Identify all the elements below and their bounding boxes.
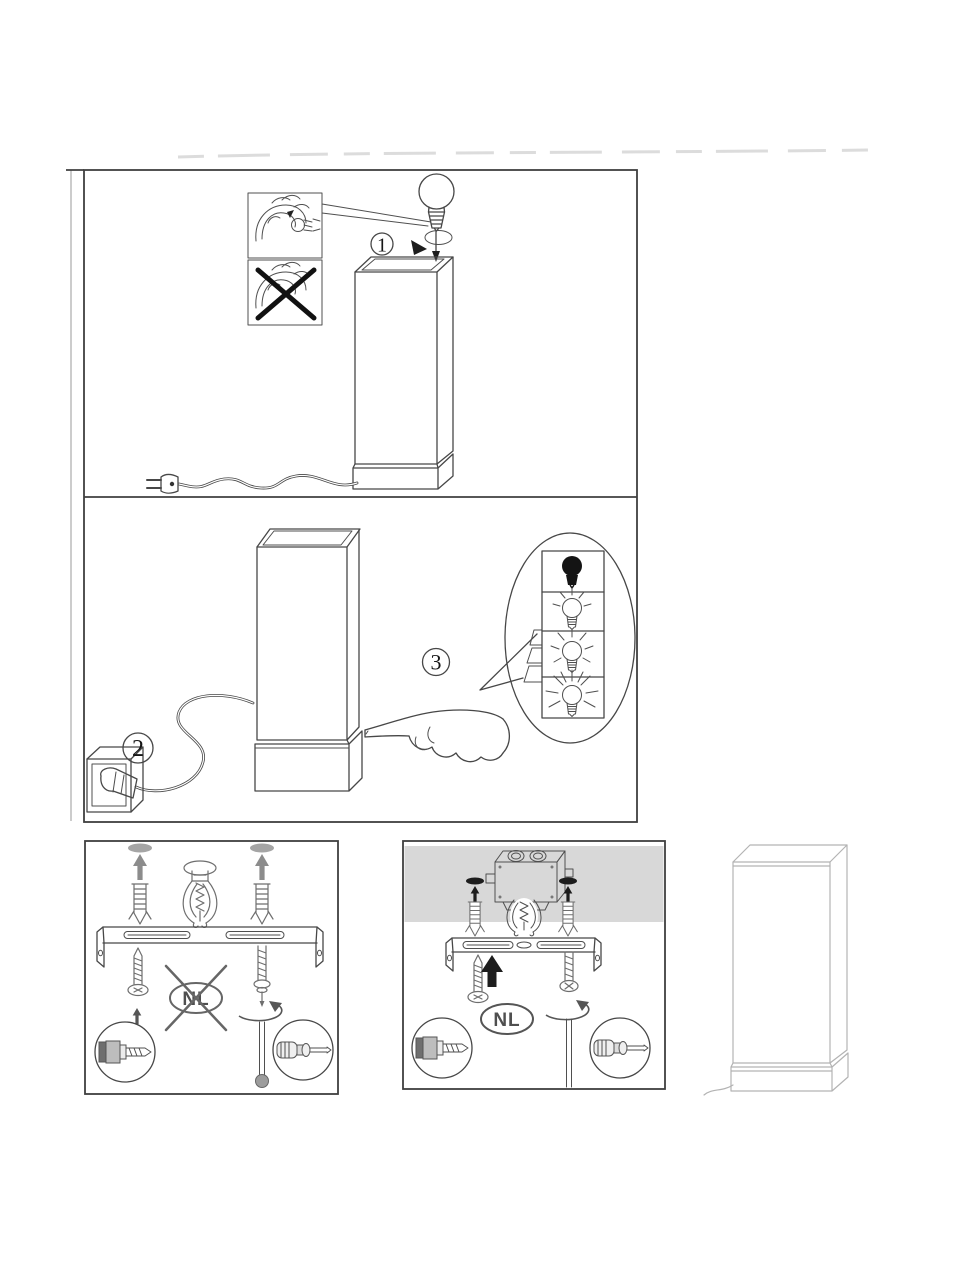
- hand-holding-bulb-icon: [256, 195, 309, 241]
- brightness-speech-bubble: [480, 533, 635, 743]
- screw-with-rotation-icon: [254, 946, 270, 1007]
- drill-hole-icon: [466, 878, 484, 885]
- inset-correct-bulb-handling: [248, 193, 322, 258]
- power-plug-icon: [147, 474, 178, 493]
- rotation-arrow-icon: [546, 1000, 589, 1020]
- wall-anchor-icon: [129, 884, 151, 924]
- up-arrow-icon: [133, 1008, 142, 1024]
- table-lamp-illustration: [353, 257, 453, 489]
- assembled-lamp-drawing: [704, 845, 848, 1095]
- ceiling-mount-panel: NL: [403, 841, 665, 1089]
- light-bulb-icon: [419, 174, 454, 231]
- up-arrow-icon: [481, 955, 503, 987]
- magnifier-wall-plug-detail: [95, 1022, 155, 1082]
- x-mark-icon: [258, 270, 314, 318]
- pointing-hand-icon: [365, 710, 509, 762]
- magnifier-screwdriver-detail: [273, 1020, 333, 1080]
- inset-pointer-lines: [322, 204, 431, 226]
- rotation-arrow-icon: [239, 1001, 282, 1021]
- magnifier-screwdriver-detail: [590, 1018, 650, 1078]
- nl-label: NL: [493, 1010, 520, 1031]
- instruction-sheet-page: 1: [0, 0, 958, 1280]
- step-1-badge: 1: [371, 233, 393, 257]
- wall-anchor-icon: [251, 884, 273, 924]
- nl-badge-crossed: NL: [166, 966, 226, 1030]
- step-3-badge: 3: [423, 649, 450, 676]
- rotation-cue-ellipse: [425, 231, 452, 245]
- screw-icon: [468, 955, 488, 1003]
- main-instruction-box: 1: [84, 170, 637, 822]
- screw-icon: [128, 948, 148, 996]
- main-box-border: [84, 170, 637, 822]
- panel-step-1-insert-bulb: 1: [147, 174, 454, 493]
- up-arrow-icon: [133, 854, 147, 880]
- mounting-bracket-icon: [97, 927, 323, 967]
- brightness-level-low-icon: [553, 588, 591, 630]
- magnifier-wall-plug-detail: [412, 1018, 472, 1078]
- power-cord: [704, 1085, 733, 1095]
- inset-box: [248, 193, 322, 258]
- step-3-label: 3: [431, 650, 442, 675]
- power-cord: [179, 475, 357, 488]
- corner-arrowhead-icon: [411, 240, 427, 255]
- step-2-badge: 2: [123, 733, 153, 763]
- bulb-in-socket-icon: [292, 219, 305, 232]
- brightness-level-medium-icon: [551, 629, 593, 673]
- tiny-arrow-icon: [287, 210, 294, 218]
- step-2-label: 2: [132, 736, 144, 762]
- instruction-sheet-canvas: 1: [0, 0, 958, 1280]
- claw-fixture-icon: [183, 861, 217, 927]
- inset-wrong-bulb-handling: [248, 260, 322, 325]
- drill-hole-icon: [250, 844, 274, 853]
- nl-badge: NL: [481, 1004, 533, 1034]
- x-mark-icon: [166, 966, 226, 1030]
- drill-hole-icon: [128, 844, 152, 853]
- drill-hole-icon: [559, 878, 577, 885]
- screwdriver-shaft: [567, 1019, 572, 1087]
- brightness-level-off-icon: [562, 556, 582, 588]
- screw-with-rotation-icon: [560, 952, 578, 992]
- step-1-label: 1: [377, 235, 387, 257]
- touch-lamp-illustration: [255, 529, 362, 791]
- panel-steps-2-3-touch-dimmer: 2 3: [87, 529, 635, 812]
- wall-mount-panel: NL: [85, 841, 338, 1094]
- hand-touching-bulb-icon: [256, 262, 309, 308]
- power-cord: [136, 695, 253, 790]
- mounting-bracket-icon: [446, 938, 601, 971]
- up-arrow-icon: [255, 854, 269, 880]
- screwdriver-shaft: [256, 1022, 269, 1088]
